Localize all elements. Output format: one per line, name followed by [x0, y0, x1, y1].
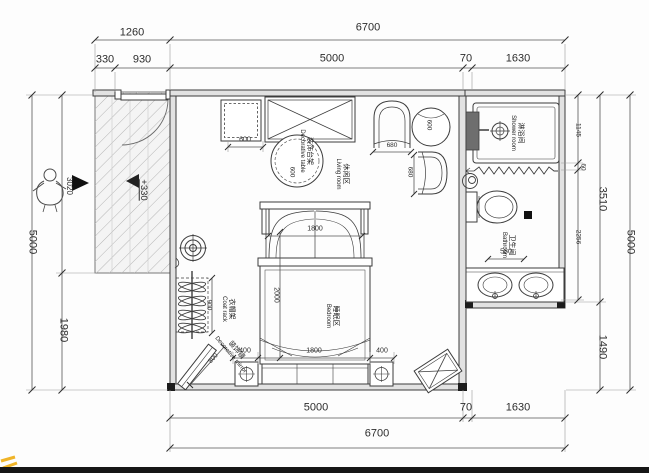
furniture-label-decor-table: 装饰台架 Decorative table: [297, 129, 313, 172]
dim-decor-table: 600: [288, 167, 295, 178]
dim-right-gap: 60: [579, 163, 586, 170]
entry-arrow-icon: [72, 175, 89, 191]
coat-rack: [176, 271, 208, 339]
room-label-en: Living room: [333, 158, 340, 189]
level-marker: +330: [138, 179, 148, 200]
room-label-en: Bathroom: [499, 232, 506, 258]
person-icon: [33, 169, 66, 212]
dim-porch-b: 930: [133, 55, 151, 66]
dim-wall-bottom: 70: [460, 403, 472, 414]
dim-left-lower: 1980: [58, 318, 69, 342]
dim-room-bottom: 5000: [304, 403, 328, 414]
room-label-zh: 休闲区: [340, 158, 348, 189]
furniture-label-zh: 衣帽架: [226, 296, 234, 322]
ceiling-light-icon: [175, 234, 207, 268]
dim-coat-rack: 900: [205, 300, 212, 311]
dim-shower-depth: 1145: [574, 123, 581, 137]
dim-room-top: 5000: [320, 54, 344, 65]
dim-foot-mid: 1800: [306, 348, 322, 355]
floor-plan: 1260 6700 330 930 5000 70 1630 5000 70 1…: [0, 0, 649, 473]
dim-cabinet: 600: [239, 137, 251, 144]
dim-bath-top: 1630: [506, 54, 530, 65]
vanity: [466, 268, 564, 302]
furniture-label-coat-rack: 衣帽架 Coat rack: [219, 296, 235, 322]
dim-block-height: 3510: [597, 187, 608, 211]
dim-porch-width: 1260: [120, 28, 144, 39]
armchair-right: [418, 152, 447, 194]
dim-wall-top: 70: [460, 54, 472, 65]
furniture-label-en: Coat rack: [219, 296, 226, 322]
shower-curtain: [466, 167, 558, 174]
nightstand-right: [370, 362, 393, 386]
dim-overall-top: 6700: [356, 23, 380, 34]
bath-floor-drain: [524, 211, 532, 219]
dim-porch-a: 330: [96, 55, 114, 66]
dim-chair-h: 680: [406, 167, 413, 178]
dim-bed-width: 1800: [307, 226, 323, 233]
decorative-mirror: [178, 344, 217, 390]
toilet: [466, 191, 517, 223]
dim-overall-right: 5000: [625, 230, 636, 254]
room-label-bathroom: 卫生间 Bathroom: [499, 232, 515, 258]
room-label-bedroom: 睡眠区 Bedroom: [323, 304, 339, 328]
dim-bed-length: 2000: [273, 287, 280, 303]
dim-side-table: 600: [425, 120, 432, 131]
room-label-zh: 淋浴间: [515, 115, 523, 151]
bottom-bar: [0, 467, 649, 473]
dim-overall-bottom: 6700: [365, 429, 389, 440]
floor-drain-icon: [490, 121, 510, 141]
room-label-living: 休闲区 Living room: [333, 158, 349, 189]
dim-bath-bottom: 1630: [506, 403, 530, 414]
storage-cabinet: [221, 100, 261, 141]
furniture-label-en: Decorative table: [297, 129, 304, 172]
dim-bath-depth: 2256: [574, 230, 581, 244]
shower-door-panel: [466, 112, 489, 150]
dim-overall-left: 5000: [27, 230, 38, 254]
room-label-en: Bedroom: [323, 304, 330, 328]
dim-below-block: 1490: [597, 335, 608, 359]
dim-left-upper: 3020: [65, 177, 73, 195]
dim-foot-right: 400: [376, 348, 388, 355]
room-label-en: Shower room: [508, 115, 515, 151]
room-label-shower: 淋浴间 Shower room: [508, 115, 524, 151]
dim-chair-w: 680: [387, 143, 398, 150]
furniture-label-zh: 装饰台架: [304, 129, 312, 172]
room-label-zh: 睡眠区: [330, 304, 338, 328]
room-label-zh: 卫生间: [506, 232, 514, 258]
